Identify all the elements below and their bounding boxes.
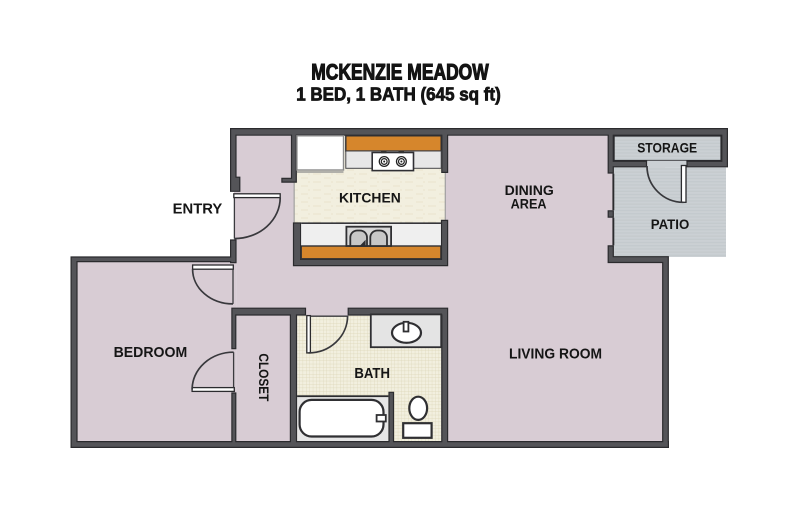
svg-text:LIVING ROOM: LIVING ROOM	[509, 347, 602, 363]
svg-text:CLOSET: CLOSET	[256, 353, 271, 401]
svg-text:AREA: AREA	[511, 196, 547, 211]
svg-text:MCKENZIE MEADOW: MCKENZIE MEADOW	[311, 60, 489, 85]
svg-text:BATH: BATH	[354, 365, 390, 382]
svg-text:1 BED, 1 BATH (645 sq ft): 1 BED, 1 BATH (645 sq ft)	[296, 85, 501, 105]
svg-text:KITCHEN: KITCHEN	[339, 189, 401, 205]
svg-text:BEDROOM: BEDROOM	[114, 345, 188, 361]
svg-text:PATIO: PATIO	[651, 217, 690, 232]
svg-text:ENTRY: ENTRY	[173, 201, 223, 217]
svg-text:STORAGE: STORAGE	[637, 141, 697, 156]
